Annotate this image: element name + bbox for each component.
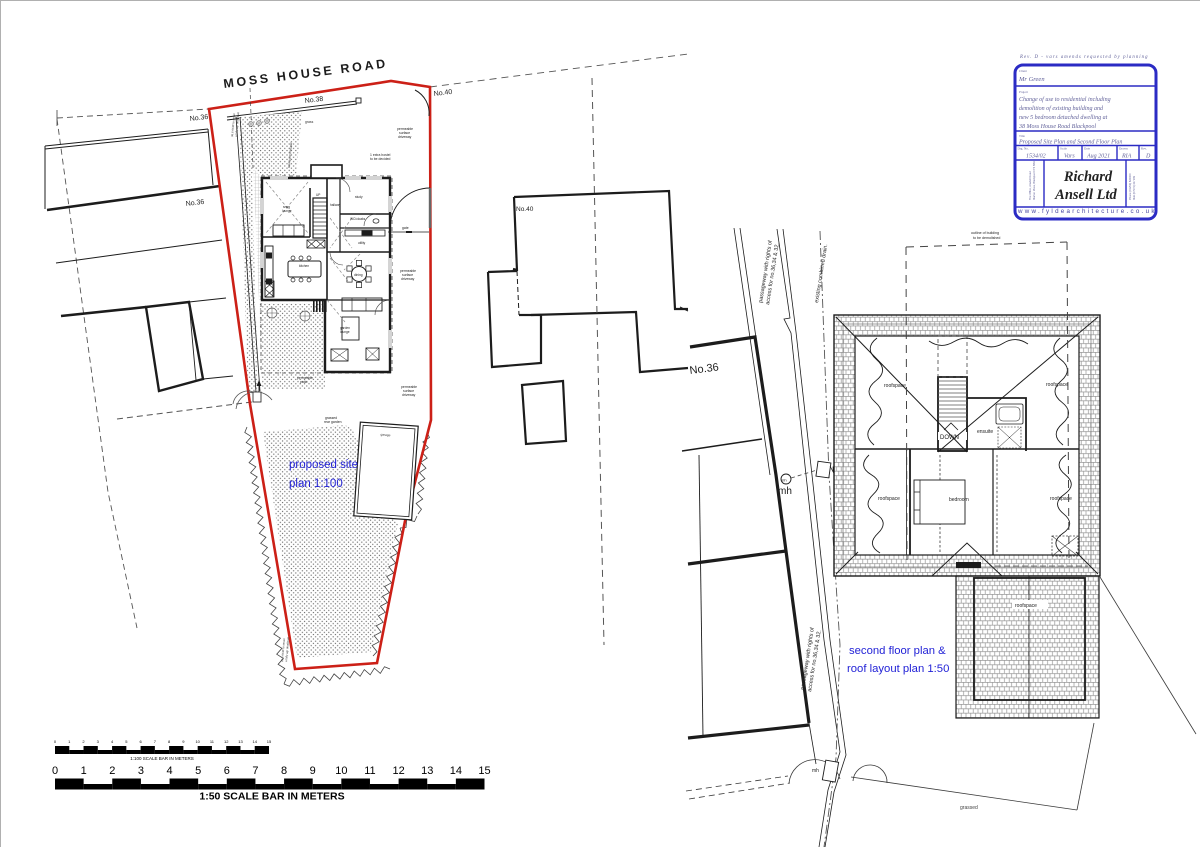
svg-text:7: 7 <box>154 739 157 744</box>
svg-text:No.36: No.36 <box>689 361 720 376</box>
svg-text:1: 1 <box>81 765 87 777</box>
svg-text:1:50 SCALE BAR IN METERS: 1:50 SCALE BAR IN METERS <box>199 791 344 803</box>
svg-text:Title: Title <box>1019 134 1025 138</box>
svg-text:3: 3 <box>138 765 144 777</box>
svg-text:Richard: Richard <box>1063 169 1113 185</box>
svg-text:1: 1 <box>68 739 71 744</box>
svg-text:0: 0 <box>52 765 58 777</box>
svg-text:mh: mh <box>778 486 792 497</box>
svg-text:mh: mh <box>781 478 787 483</box>
svg-text:patio: patio <box>300 380 307 384</box>
svg-text:lounge: lounge <box>340 330 350 334</box>
svg-text:Vars: Vars <box>1064 154 1075 160</box>
svg-text:2: 2 <box>109 765 115 777</box>
svg-text:D: D <box>1145 154 1151 160</box>
svg-text:13: 13 <box>238 739 243 744</box>
svg-text:10: 10 <box>335 765 347 777</box>
svg-text:roof layout plan 1:50: roof layout plan 1:50 <box>847 663 949 675</box>
svg-text:Rev. D - vars amends request: Rev. D - vars amends requested by planni… <box>1019 55 1149 60</box>
svg-text:dining: dining <box>354 273 363 277</box>
svg-text:15: 15 <box>478 765 490 777</box>
svg-text:rear garden: rear garden <box>324 420 342 424</box>
svg-text:11: 11 <box>210 739 215 744</box>
svg-text:DOWN: DOWN <box>940 435 959 441</box>
svg-text:Phone (01253) 820000: Phone (01253) 820000 <box>1128 173 1132 200</box>
svg-text:roofspace: roofspace <box>1015 603 1037 609</box>
svg-text:bedroom: bedroom <box>949 497 969 503</box>
svg-text:No.36: No.36 <box>189 114 208 123</box>
svg-text:www.fyldearchitecture.co.uk: www.fyldearchitecture.co.uk <box>1017 208 1157 215</box>
svg-text:No.36: No.36 <box>185 199 204 208</box>
svg-text:Scale: Scale <box>1060 147 1067 151</box>
svg-text:Change of use to residential i: Change of use to residential including <box>1019 96 1111 103</box>
svg-text:38 Moss House Road Blackpool: 38 Moss House Road Blackpool <box>1018 124 1096 130</box>
svg-text:7: 7 <box>252 765 258 777</box>
svg-text:9: 9 <box>182 739 185 744</box>
svg-text:utility: utility <box>358 241 366 245</box>
svg-text:11: 11 <box>364 765 375 777</box>
svg-text:Client: Client <box>1019 69 1027 73</box>
svg-text:demolition of existing buildin: demolition of existing building and <box>1019 105 1104 112</box>
svg-text:driveway: driveway <box>398 135 412 139</box>
svg-text:gate: gate <box>402 226 409 230</box>
svg-text:15: 15 <box>267 739 272 744</box>
svg-text:study: study <box>355 195 363 199</box>
svg-text:4: 4 <box>166 765 172 777</box>
svg-text:No.40: No.40 <box>433 89 452 98</box>
svg-text:6: 6 <box>224 765 230 777</box>
svg-text:9: 9 <box>310 765 316 777</box>
svg-text:1534/02: 1534/02 <box>1026 153 1046 160</box>
svg-text:Project: Project <box>1019 90 1028 94</box>
svg-text:new 5 bedroom detached dwellin: new 5 bedroom detached dwelling at <box>1019 115 1108 121</box>
svg-text:6: 6 <box>139 739 142 744</box>
svg-text:Date: Date <box>1084 147 1091 151</box>
svg-text:2: 2 <box>82 739 85 744</box>
svg-text:roofspace: roofspace <box>884 383 906 389</box>
svg-text:UP: UP <box>316 193 320 197</box>
svg-text:12: 12 <box>392 765 404 777</box>
svg-text:WC/cloaks: WC/cloaks <box>350 217 366 221</box>
svg-text:Mr Green: Mr Green <box>1018 76 1045 83</box>
svg-text:grass: grass <box>305 120 314 124</box>
svg-text:roofspace: roofspace <box>878 496 900 502</box>
svg-text:10: 10 <box>195 739 200 744</box>
svg-text:a fully agr deadlevel: a fully agr deadlevel <box>284 637 290 663</box>
svg-text:lounge: lounge <box>282 209 292 213</box>
svg-text:proposed site: proposed site <box>289 459 358 471</box>
svg-text:Aug 2021: Aug 2021 <box>1086 154 1110 160</box>
svg-text:driveway: driveway <box>401 277 415 281</box>
svg-text:roofspace: roofspace <box>1046 382 1068 388</box>
svg-text:to be demolished: to be demolished <box>973 236 1000 240</box>
svg-text:13: 13 <box>421 765 433 777</box>
svg-text:hallway: hallway <box>330 203 341 207</box>
svg-text:grassed: grassed <box>960 805 978 811</box>
svg-text:driveway: driveway <box>402 393 416 397</box>
svg-text:Proposed Site Plan and Second: Proposed Site Plan and Second Floor Plan <box>1018 140 1122 146</box>
svg-text:Marton Moss, Blackpool FY4 5BH: Marton Moss, Blackpool FY4 5BH <box>1032 161 1036 200</box>
svg-text:3: 3 <box>97 739 100 744</box>
svg-text:8: 8 <box>281 765 287 777</box>
svg-text:second floor plan &: second floor plan & <box>849 645 946 657</box>
svg-text:plan 1:100: plan 1:100 <box>289 478 343 490</box>
svg-text:5: 5 <box>195 765 201 777</box>
svg-text:14: 14 <box>253 739 258 744</box>
svg-text:ensuite: ensuite <box>977 429 993 435</box>
svg-text:Ansell Ltd: Ansell Ltd <box>1054 187 1117 203</box>
svg-text:existing combined drain.: existing combined drain. <box>814 243 829 303</box>
svg-text:Mob (07973) 417199: Mob (07973) 417199 <box>1132 175 1136 200</box>
svg-text:12: 12 <box>224 739 229 744</box>
svg-text:garage: garage <box>380 433 390 438</box>
svg-text:5: 5 <box>125 739 128 744</box>
svg-text:No.38: No.38 <box>304 96 323 105</box>
svg-text:kitchen: kitchen <box>299 264 309 268</box>
svg-text:to be decided: to be decided <box>370 157 390 161</box>
svg-text:Drg. No.: Drg. No. <box>1018 147 1029 151</box>
svg-text:14: 14 <box>450 765 462 777</box>
svg-text:mh: mh <box>812 768 819 774</box>
svg-text:Drawn: Drawn <box>1119 147 1128 151</box>
svg-text:outline of building: outline of building <box>971 231 999 235</box>
svg-text:Rev.: Rev. <box>1141 147 1147 151</box>
svg-text:0: 0 <box>54 739 57 744</box>
svg-text:8: 8 <box>168 739 171 744</box>
svg-text:4: 4 <box>111 739 114 744</box>
svg-text:RIA: RIA <box>1121 154 1132 160</box>
svg-text:No.40: No.40 <box>516 206 534 213</box>
svg-text:The Office, Ansdell Road: The Office, Ansdell Road <box>1028 171 1032 200</box>
svg-text:1:100 SCALE BAR IN METERS: 1:100 SCALE BAR IN METERS <box>130 756 194 761</box>
